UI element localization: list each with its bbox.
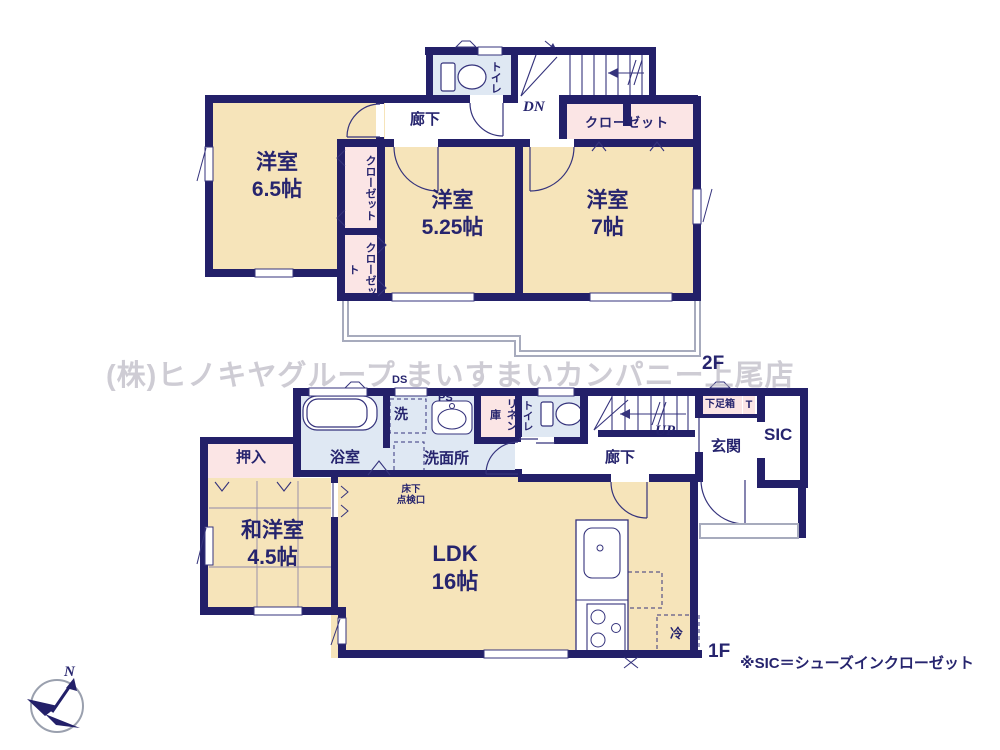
oshiire-label: 押入: [236, 448, 266, 467]
floor-hatch-label: 床下 点検口: [388, 484, 434, 507]
shoe-box-label: 下足箱: [698, 399, 742, 412]
washroom-label: 洗面所: [424, 449, 469, 468]
linen-closet-label: リネン庫: [479, 393, 519, 435]
duct-space-label: DS: [392, 373, 407, 387]
floor1-tag: 1F: [708, 640, 730, 664]
vent-canopy-2f: [456, 41, 476, 47]
compass: [27, 678, 83, 732]
floor-plan-page: (株)ヒノキヤグループ まいすまいカンパニー上尾店 洋室 6.5帖 洋室 5.2…: [0, 0, 1000, 750]
kitchen-sink: [584, 528, 620, 578]
shoe-box-t-label: T: [743, 398, 755, 412]
room-label-2f-65: 洋室 6.5帖: [222, 150, 332, 204]
closet-label-2f-lower: クローゼット: [344, 238, 378, 300]
floor2-tag: 2F: [702, 352, 724, 376]
door-arc-entrance: [701, 480, 745, 524]
compass-bird-wing: [45, 714, 80, 728]
bathroom-label: 浴室: [330, 448, 360, 467]
pipe-space-label: PS: [438, 391, 453, 405]
hallway-label-1f: 廊下: [605, 448, 635, 467]
hallway-label-2f: 廊下: [410, 110, 440, 129]
vent-mark: [624, 657, 638, 668]
laundry-label: 洗: [394, 406, 408, 424]
stairs-down-label: DN: [523, 98, 545, 117]
toilet-label-2f: トイレ: [488, 54, 501, 100]
casement-mark: [703, 189, 712, 222]
stairs-2f-arrow: [608, 68, 618, 78]
toilet-fixture-1f: [541, 402, 582, 426]
room-label-2f-525: 洋室 5.25帖: [395, 188, 510, 242]
closet-label-2f-right: クローゼット: [585, 115, 669, 132]
sic-footnote: ※SIC＝シューズインクローゼット: [740, 654, 974, 673]
shoe-in-closet-label: SIC: [764, 424, 792, 446]
balcony-outline: [343, 301, 700, 356]
toilet-label-1f: トイレ: [521, 396, 534, 436]
room-label-2f-7: 洋室 7帖: [555, 188, 660, 242]
wash-basin: [432, 401, 472, 434]
toilet-fixture-2f: [441, 63, 486, 91]
japanese-room-label: 和洋室 4.5帖: [210, 518, 335, 572]
ldk-label: LDK 16帖: [395, 540, 515, 596]
kitchen-counter: [576, 520, 628, 656]
stairs-up-label: UP: [655, 422, 675, 441]
refrigerator-label: 冷: [670, 626, 683, 643]
bathtub: [303, 396, 377, 430]
entrance-label: 玄関: [711, 437, 741, 456]
closet-label-2f-upper: クローゼット: [344, 149, 378, 227]
compass-north-label: N: [64, 663, 75, 682]
watermark: (株)ヒノキヤグループ まいすまいカンパニー上尾店: [106, 352, 795, 394]
porch-outline: [700, 524, 798, 538]
door-arc-2f-toilet: [470, 103, 503, 136]
